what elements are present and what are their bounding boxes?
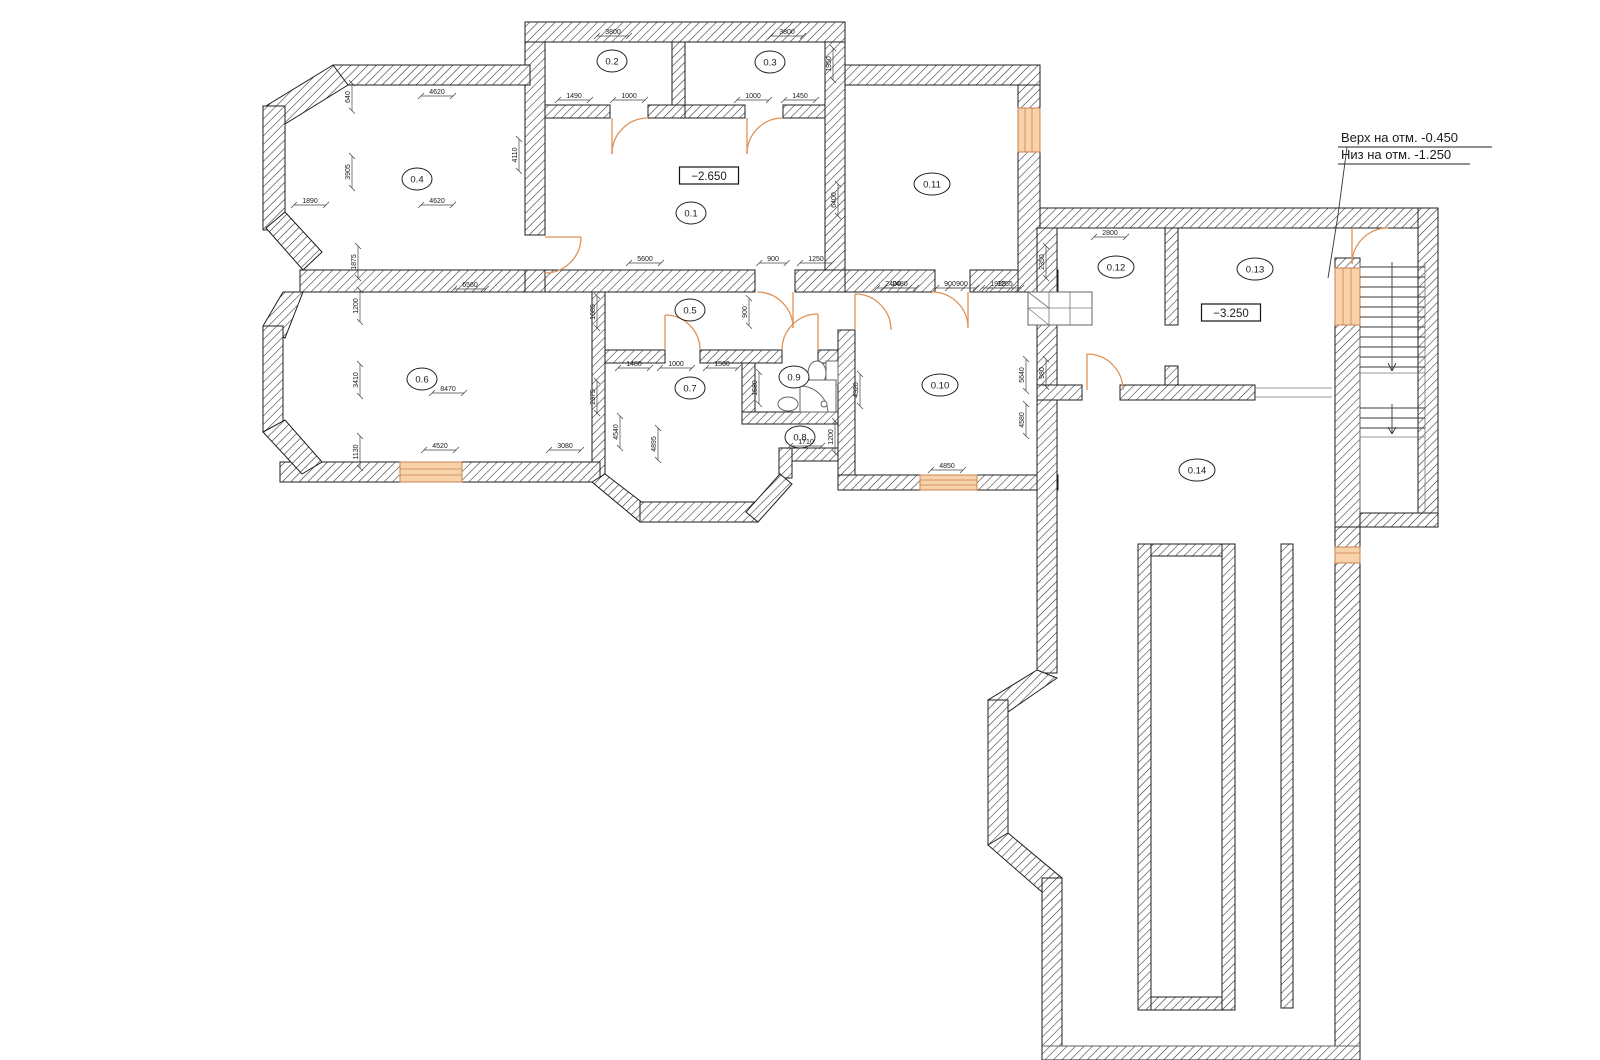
dimension-value: 2480 [892,281,908,288]
stair-direction-arrow-upper [1388,262,1396,371]
dimension-value: 4110 [512,147,519,162]
dimension-value: 5640 [1019,367,1026,383]
room-label: 0.2 [597,50,627,72]
window-room14 [1335,547,1360,563]
annotation-line1: Верх на отм. -0.450 [1341,130,1458,145]
sink-icon [778,397,798,411]
ventilation-shaft [1028,292,1092,325]
dimension-value: 1000 [668,361,684,368]
dimension: 3080 [546,443,584,453]
dimension-value: 1200 [828,429,835,445]
dimension-value: 1450 [792,93,808,100]
dimension: 4520 [421,443,459,453]
dimension: 1200 [353,287,363,325]
dimension: 900 [756,256,790,266]
dimension-value: 1480 [626,361,642,368]
window-room10 [920,475,977,490]
dimension-value: 900 [944,281,956,288]
dimension-value: 4540 [613,424,620,440]
door-room4-room1 [545,237,581,273]
door-room2 [612,118,648,154]
door-room3 [747,118,783,154]
door-room9 [782,314,818,350]
stairs [1360,262,1425,434]
dimension-value: 1875 [351,254,358,270]
dimension-value: 8470 [440,386,456,393]
dimension: 1490 [555,93,593,103]
dimension: 3905 [345,153,355,191]
room-number: 0.10 [931,381,950,392]
room-number: 0.9 [787,373,800,384]
dimension-value: 1000 [621,93,637,100]
dimension-value: 4850 [939,463,955,470]
stair-treads-lower [1360,408,1425,428]
dimension: 900 [742,295,752,329]
room-label: 0.6 [407,368,437,390]
dimension-value: 980 [1039,367,1046,379]
dimension: 4895 [651,425,661,463]
room-number: 0.1 [684,209,697,220]
room-number: 0.13 [1246,265,1265,276]
dimension-value: 2800 [1102,230,1118,237]
room-label: 0.12 [1098,256,1134,278]
dimension: 4620 [418,198,456,208]
dimension-value: 1250 [808,256,824,263]
room-number: 0.14 [1188,466,1207,477]
window-stairwell [1335,268,1360,325]
room-number: 0.2 [605,57,618,68]
walls-layer [263,22,1438,1060]
dimension-value: 1130 [353,444,360,459]
elevation-mark: −3.250 [1202,304,1261,321]
dimension-value: 5600 [637,256,653,263]
dimension-value: 1200 [353,298,360,314]
room-number: 0.11 [923,180,941,191]
dimension-value: 3080 [557,443,573,450]
room-number: 0.7 [683,384,696,395]
elevation-value: −2.650 [691,171,727,183]
floor-plan-canvas: Верх на отм. -0.450 Низ на отм. -1.250 0… [0,0,1600,1060]
dimension: 5640 [1019,356,1029,394]
room-number: 0.4 [410,175,423,186]
dimensions-layer: 3800380019501490100010001450462064041103… [291,29,1129,473]
dimension: 8470 [429,386,467,396]
room-label: 0.11 [914,173,950,195]
stair-treads-upper [1360,267,1425,367]
dimension-value: 1255 [997,281,1013,288]
dimension-value: 640 [345,91,352,103]
room-number: 0.5 [683,306,696,317]
room-number: 0.3 [763,58,776,69]
room-number: 0.6 [415,375,428,386]
elevation-mark: −2.650 [680,167,739,184]
dimension-value: 2350 [1039,254,1046,270]
dimension-value: 1490 [566,93,582,100]
dimension-value: 1000 [745,93,761,100]
dimension: 1000 [610,93,648,103]
doors-layer [545,118,1388,390]
floor-plan-page: Верх на отм. -0.450 Низ на отм. -1.250 0… [0,0,1600,1060]
door-room11-room10 [932,292,968,328]
window-room11 [1018,108,1040,152]
dimension-value: 2375 [590,389,597,405]
dimension-value: 3800 [605,29,621,36]
stair-direction-arrow-lower [1388,404,1396,434]
dimension-value: 900 [956,281,968,288]
room-label: 0.13 [1237,258,1273,280]
dimension: 1890 [291,198,329,208]
room-label: 0.5 [675,299,705,321]
dimension-value: 900 [767,256,779,263]
door-room1-corridor [757,292,793,328]
dimension-value: 1950 [826,56,833,72]
dimension: 4620 [418,89,456,99]
door-room12 [1087,354,1123,390]
dimension: 3410 [353,361,363,399]
room-label: 0.7 [675,377,705,399]
door-corridor-room10 [855,294,891,330]
dimension: 4540 [613,413,623,451]
dimension: 2800 [1091,230,1129,240]
dimension: 4580 [1019,401,1029,439]
room-number: 0.12 [1107,263,1126,274]
dimension: 1000 [734,93,772,103]
dimension-value: 3800 [779,29,795,36]
room-label: 0.9 [779,366,809,388]
dimension-value: 1685 [590,304,597,320]
room-label: 0.4 [402,168,432,190]
dimension-value: 900 [742,306,749,318]
room-label: 0.14 [1179,459,1215,481]
room-label: 0.10 [922,374,958,396]
window-room6 [400,462,462,482]
dimension-value: 4620 [429,198,445,205]
dimension-value: 4520 [432,443,448,450]
dimension: 4850 [928,463,966,473]
dimension-value: 1560 [714,361,730,368]
elevation-value: −3.250 [1213,308,1249,320]
dimension: 1450 [781,93,819,103]
room-label: 0.3 [755,51,785,73]
dimension: 5600 [626,256,664,266]
dimension-value: 4320 [853,382,860,398]
dimension-value: 1580 [752,380,759,396]
dimension-value: 1890 [302,198,318,205]
dimension-value: 4895 [651,436,658,452]
dimension-value: 6560 [462,282,478,289]
dimension-value: 6400 [831,192,838,208]
annotation-line2: Низ на отм. -1.250 [1341,147,1451,162]
dimension-value: 4580 [1019,412,1026,428]
dimension: 4110 [512,136,522,174]
dimension-value: 3905 [345,164,352,180]
dimension-value: 3410 [353,372,360,388]
room-label: 0.1 [676,202,706,224]
dimension-value: 4620 [429,89,445,96]
dimension-value: 1710 [798,439,814,446]
